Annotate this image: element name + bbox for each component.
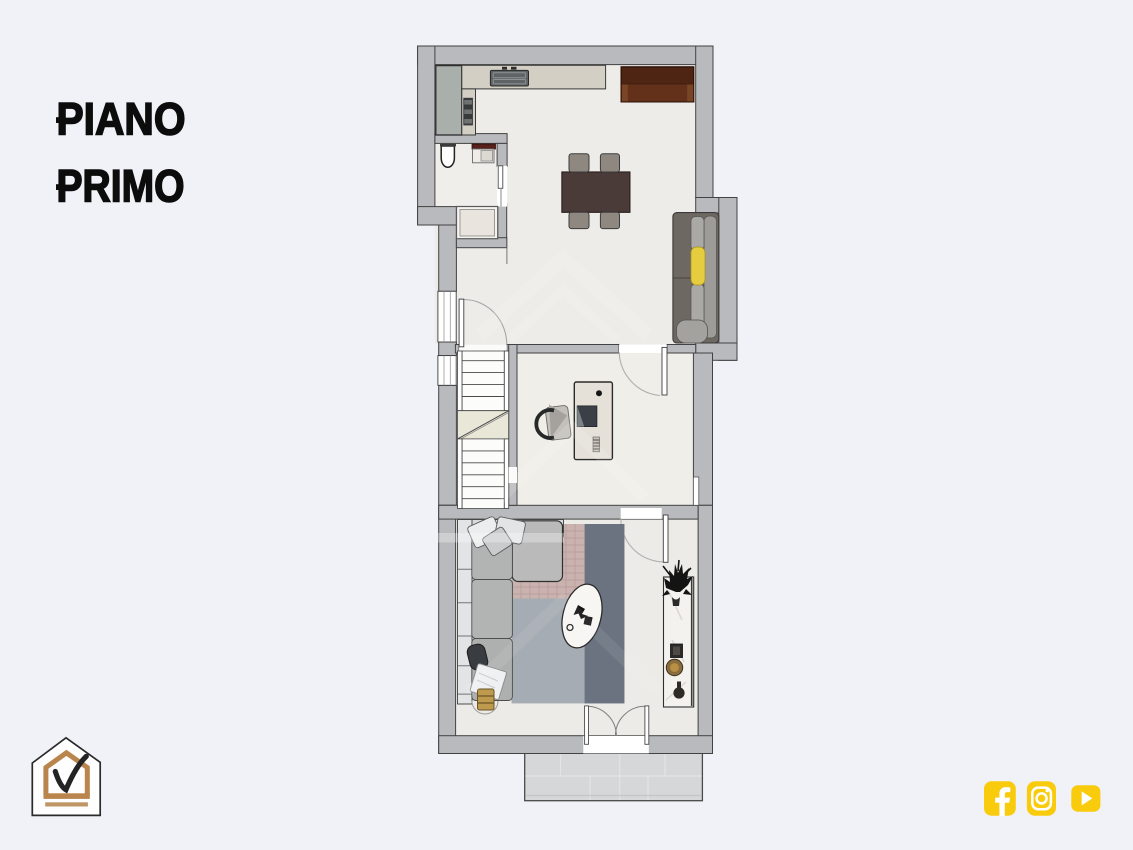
svg-text:PRIMO: PRIMO bbox=[57, 161, 185, 212]
svg-text:PIANO: PIANO bbox=[57, 94, 186, 145]
